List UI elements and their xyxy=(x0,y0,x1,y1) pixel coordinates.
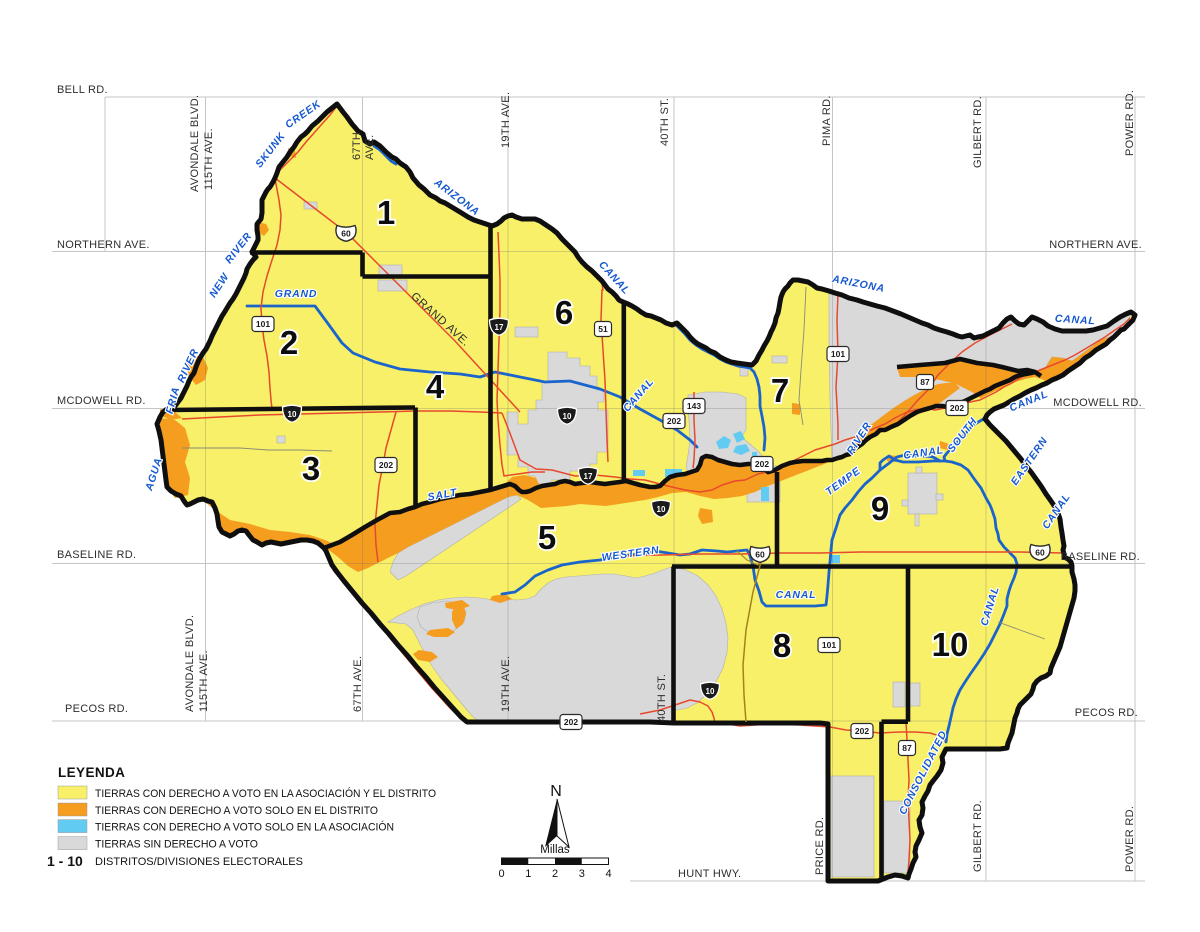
svg-text:10: 10 xyxy=(657,505,666,514)
svg-text:1: 1 xyxy=(525,868,531,880)
svg-text:PECOS RD.: PECOS RD. xyxy=(65,703,128,715)
svg-text:2: 2 xyxy=(280,324,298,361)
svg-text:5: 5 xyxy=(538,519,556,556)
svg-text:2: 2 xyxy=(552,868,558,880)
svg-text:NORTHERN AVE.: NORTHERN AVE. xyxy=(1049,239,1142,251)
svg-text:1: 1 xyxy=(377,194,395,231)
svg-text:17: 17 xyxy=(584,472,593,481)
svg-text:101: 101 xyxy=(831,349,845,359)
svg-text:POWER RD.: POWER RD. xyxy=(1124,90,1136,156)
svg-text:TIERRAS CON DERECHO A VOTO SOL: TIERRAS CON DERECHO A VOTO SOLO EN LA AS… xyxy=(95,821,394,834)
svg-text:0: 0 xyxy=(498,868,504,880)
svg-text:HUNT HWY.: HUNT HWY. xyxy=(678,868,741,880)
svg-text:GILBERT RD.: GILBERT RD. xyxy=(972,800,984,872)
svg-text:60: 60 xyxy=(1035,547,1045,557)
svg-text:MCDOWELL RD.: MCDOWELL RD. xyxy=(57,395,146,407)
svg-text:87: 87 xyxy=(920,377,930,387)
svg-text:BASELINE RD.: BASELINE RD. xyxy=(57,549,136,561)
svg-text:GILBERT RD.: GILBERT RD. xyxy=(972,96,984,168)
svg-text:115TH AVE.: 115TH AVE. xyxy=(198,650,210,712)
svg-text:NORTHERN AVE.: NORTHERN AVE. xyxy=(57,239,150,251)
svg-text:9: 9 xyxy=(871,490,889,527)
svg-text:TIERRAS CON DERECHO A VOTO EN: TIERRAS CON DERECHO A VOTO EN LA ASOCIAC… xyxy=(95,787,436,800)
svg-text:CANAL: CANAL xyxy=(776,589,817,601)
svg-text:LEYENDA: LEYENDA xyxy=(58,765,125,780)
svg-text:6: 6 xyxy=(555,294,573,331)
svg-text:202: 202 xyxy=(564,717,578,727)
svg-text:POWER RD.: POWER RD. xyxy=(1124,806,1136,872)
svg-text:19TH AVE.: 19TH AVE. xyxy=(500,656,512,712)
svg-text:40TH ST.: 40TH ST. xyxy=(656,674,668,722)
svg-text:87: 87 xyxy=(902,743,912,753)
svg-text:101: 101 xyxy=(822,640,836,650)
svg-text:AVE.: AVE. xyxy=(364,135,376,160)
svg-text:3: 3 xyxy=(579,868,585,880)
svg-text:PRICE RD.: PRICE RD. xyxy=(814,817,826,875)
svg-text:202: 202 xyxy=(950,403,964,413)
svg-text:MCDOWELL RD.: MCDOWELL RD. xyxy=(1053,397,1142,409)
svg-text:3: 3 xyxy=(302,450,320,487)
svg-text:202: 202 xyxy=(379,460,393,470)
svg-text:TIERRAS CON DERECHO A VOTO SOL: TIERRAS CON DERECHO A VOTO SOLO EN EL DI… xyxy=(95,805,378,817)
svg-text:19TH AVE.: 19TH AVE. xyxy=(500,92,512,148)
svg-text:DISTRITOS/DIVISIONES ELECTORAL: DISTRITOS/DIVISIONES ELECTORALES xyxy=(95,856,303,868)
svg-text:143: 143 xyxy=(687,401,701,411)
svg-text:67TH: 67TH xyxy=(351,132,363,160)
svg-text:N: N xyxy=(550,783,562,800)
svg-text:AVONDALE BLVD.: AVONDALE BLVD. xyxy=(184,615,196,712)
svg-text:BELL RD.: BELL RD. xyxy=(57,84,108,96)
svg-text:67TH AVE.: 67TH AVE. xyxy=(352,656,364,712)
svg-text:60: 60 xyxy=(341,228,351,238)
svg-text:BASELINE RD.: BASELINE RD. xyxy=(1061,551,1140,563)
svg-text:Millas: Millas xyxy=(540,844,570,856)
svg-text:PIMA RD.: PIMA RD. xyxy=(821,95,833,146)
svg-text:4: 4 xyxy=(605,868,611,880)
svg-text:10: 10 xyxy=(288,410,297,419)
svg-text:1 - 10: 1 - 10 xyxy=(47,853,83,869)
svg-text:10: 10 xyxy=(932,626,969,663)
svg-text:202: 202 xyxy=(667,416,681,426)
svg-text:GRAND: GRAND xyxy=(275,288,318,300)
svg-text:PECOS RD.: PECOS RD. xyxy=(1075,707,1138,719)
svg-text:17: 17 xyxy=(495,323,504,332)
svg-text:51: 51 xyxy=(598,324,608,334)
svg-text:8: 8 xyxy=(773,627,791,664)
svg-text:202: 202 xyxy=(755,459,769,469)
svg-text:60: 60 xyxy=(755,549,765,559)
svg-text:40TH ST.: 40TH ST. xyxy=(659,98,671,146)
svg-text:4: 4 xyxy=(426,368,445,405)
svg-text:AVONDALE BLVD.: AVONDALE BLVD. xyxy=(189,95,201,192)
svg-text:7: 7 xyxy=(771,372,789,409)
svg-text:TIERRAS SIN DERECHO A VOTO: TIERRAS SIN DERECHO A VOTO xyxy=(95,839,258,851)
svg-text:10: 10 xyxy=(563,412,572,421)
svg-text:101: 101 xyxy=(256,319,270,329)
svg-text:10: 10 xyxy=(706,687,715,696)
svg-text:202: 202 xyxy=(855,726,869,736)
svg-text:115TH AVE.: 115TH AVE. xyxy=(203,128,215,190)
